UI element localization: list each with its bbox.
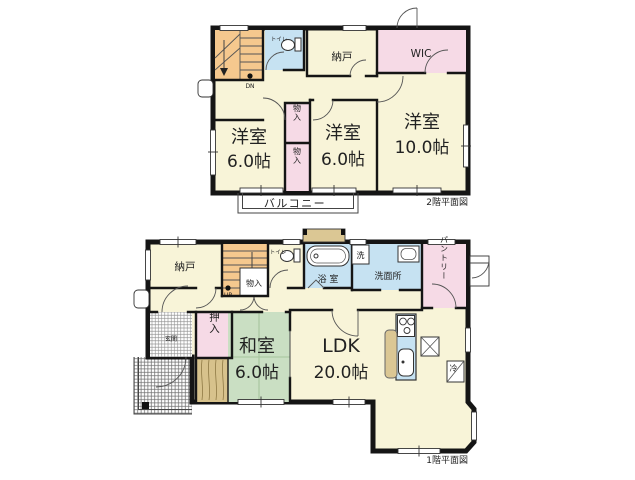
closet-lower-label: 物入 <box>293 146 302 165</box>
bedroom-left-size: 6.0帖 <box>227 152 271 172</box>
sink-icon-washroom <box>398 246 419 262</box>
window <box>240 188 283 193</box>
fridge-label: 冷 <box>450 363 458 373</box>
floor-plan-svg: DN <box>0 0 635 480</box>
floor-plan-image: DN <box>0 0 635 480</box>
toilet-label-1f: トイレ <box>270 250 287 256</box>
balcony: バルコニー <box>238 193 358 213</box>
porch-post <box>142 402 149 409</box>
floor2-title: 2階平面図 <box>426 197 468 208</box>
ldk-name: LDK <box>322 335 360 357</box>
bedroom-right-size: 10.0帖 <box>395 138 450 158</box>
bay-window-2f <box>198 80 213 97</box>
kitchen-island <box>385 330 397 378</box>
room-genkan <box>150 312 192 357</box>
bathtub-icon <box>307 246 349 266</box>
stair-dot-2f <box>247 73 252 78</box>
oshiire-label: 押入 <box>208 311 220 335</box>
window <box>466 328 471 352</box>
door-arc-exterior-2f <box>397 8 417 28</box>
closet-1f-label: 物入 <box>246 278 262 288</box>
washroom-label: 洗面所 <box>374 270 401 282</box>
entrance-porch <box>134 357 192 414</box>
balcony-label: バルコニー <box>264 197 326 210</box>
floor2-plan: DN <box>198 8 471 213</box>
window <box>220 26 248 31</box>
bedroom-right-name: 洋室 <box>404 112 440 133</box>
stair-dot-1f <box>225 285 230 290</box>
washitsu-size: 6.0帖 <box>235 363 279 383</box>
pantry-label: パントリー <box>440 236 449 281</box>
bath-label: 浴 室 <box>318 273 339 285</box>
storage-label-2f: 納戸 <box>332 50 353 63</box>
stairs-dn-label: DN <box>245 83 254 90</box>
window <box>211 130 216 175</box>
bedroom-mid-size: 6.0帖 <box>321 150 365 170</box>
window <box>146 250 151 280</box>
kitchen-sink-icon <box>399 349 414 376</box>
storage-label-1f: 納戸 <box>175 260 196 273</box>
window <box>472 412 477 440</box>
genkan-label: 玄関 <box>165 335 177 343</box>
window <box>350 240 366 245</box>
bedroom-mid-name: 洋室 <box>325 123 361 144</box>
floor1-title: 1階平面図 <box>426 455 468 466</box>
bedroom-left-name: 洋室 <box>231 127 267 148</box>
back-door-steps <box>470 256 489 286</box>
window <box>343 26 366 31</box>
ldk-size: 20.0帖 <box>314 363 369 383</box>
washitsu-name: 和室 <box>239 336 275 357</box>
bay-window-1f <box>134 290 149 308</box>
toilet-label-2f: トイレ <box>271 37 288 43</box>
floor-hatch-box <box>421 337 439 356</box>
washer-box: 洗 <box>352 245 369 264</box>
closet-upper-label: 物入 <box>293 103 302 122</box>
wic-label: WIC <box>411 48 432 60</box>
fridge-box: 冷 <box>447 361 464 382</box>
window <box>283 240 300 245</box>
room-stairs-2f <box>215 30 263 80</box>
washer-label: 洗 <box>357 250 365 260</box>
utility-box-exterior <box>303 229 345 242</box>
kitchen-counter <box>396 314 416 380</box>
floor1-plan: UP 物入 <box>134 229 489 466</box>
